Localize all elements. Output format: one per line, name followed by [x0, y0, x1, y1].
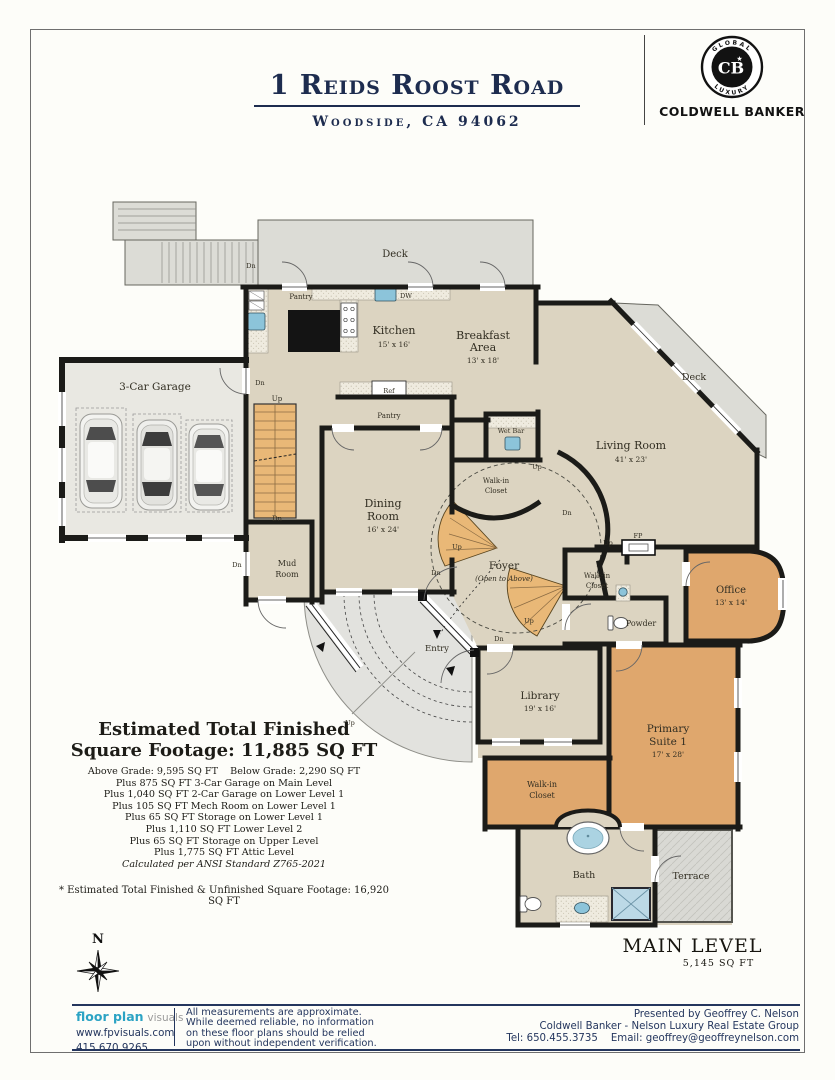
room-dims-breakfast: 13' x 18'	[467, 356, 499, 365]
room-label-wet-bar: Wet Bar	[498, 427, 525, 435]
compass-north-label: N	[70, 932, 126, 947]
dishwasher-icon	[375, 288, 396, 301]
room-office-floor	[686, 551, 784, 641]
car-3	[189, 424, 229, 510]
compass-rose: N	[70, 932, 126, 999]
deck-top	[113, 202, 533, 285]
range-icon	[341, 303, 357, 337]
estimate-line: Plus 105 SQ FT Mech Room on Lower Level …	[56, 801, 392, 813]
room-label-walkin-mid: Walk-in	[584, 572, 611, 580]
room-label-foyer: Foyer	[489, 560, 520, 572]
footer-vendor: floor plan visuals www.fpvisuals.com 415…	[76, 1009, 172, 1054]
estimate-footnote: * Estimated Total Finished & Unfinished …	[56, 885, 392, 907]
room-note-foyer: (Open to Above)	[475, 575, 533, 583]
svg-text:Dn: Dn	[562, 509, 571, 517]
footer-divider	[174, 1008, 175, 1046]
square-footage-summary: Estimated Total Finished Square Footage:…	[56, 719, 392, 907]
car-1	[80, 414, 122, 508]
agent-contact: Tel: 650.455.3735 Email: geoffrey@geoffr…	[399, 1033, 799, 1045]
wet-bar-sink-icon	[505, 437, 520, 450]
vendor-website: www.fpvisuals.com	[76, 1027, 172, 1039]
room-label-walkin-upper: Walk-in	[483, 477, 510, 485]
room-dims-kitchen: 15' x 16'	[378, 340, 410, 349]
room-label-library: Library	[520, 690, 559, 702]
fixture-label-ref: Ref	[383, 387, 395, 395]
floor-plan: Deck Dn Pantry DW Kitchen 15' x 16' Brea…	[0, 0, 835, 1080]
room-label-pantry-2: Pantry	[377, 412, 400, 420]
room-dims-dining: 16' x 24'	[367, 525, 399, 534]
estimate-heading-1: Estimated Total Finished	[56, 719, 392, 740]
footer-agent-info: Presented by Geoffrey C. Nelson Coldwell…	[399, 1009, 799, 1045]
level-name: MAIN LEVEL	[590, 935, 795, 957]
svg-text:Dn: Dn	[232, 561, 241, 569]
room-label-garage: 3-Car Garage	[119, 381, 191, 393]
powder-sink-icon	[619, 588, 627, 596]
footer-rule-top	[72, 1004, 800, 1006]
stair-main	[254, 404, 296, 518]
estimate-line: Plus 1,775 SQ FT Attic Level	[56, 847, 392, 859]
svg-text:Dn: Dn	[494, 635, 503, 643]
estimate-line: Above Grade: 9,595 SQ FT Below Grade: 2,…	[56, 766, 392, 778]
svg-text:Room: Room	[367, 510, 400, 523]
svg-text:Closet: Closet	[485, 487, 508, 495]
room-dims-office: 13' x 14'	[715, 598, 747, 607]
svg-text:Suite 1: Suite 1	[649, 736, 687, 748]
estimate-line: Plus 1,110 SQ FT Lower Level 2	[56, 824, 392, 836]
svg-text:Area: Area	[469, 341, 497, 354]
estimate-line: Plus 65 SQ FT Storage on Lower Level 1	[56, 812, 392, 824]
room-label-office: Office	[716, 585, 746, 596]
brokerage: Coldwell Banker - Nelson Luxury Real Est…	[399, 1021, 799, 1033]
svg-text:Closet: Closet	[529, 791, 555, 800]
room-dims-library: 19' x 16'	[524, 704, 556, 713]
fixture-label-dw: DW	[400, 292, 412, 300]
svg-text:Up: Up	[452, 543, 462, 551]
estimate-line: Plus 875 SQ FT 3-Car Garage on Main Leve…	[56, 778, 392, 790]
level-title: MAIN LEVEL 5,145 SQ FT	[590, 935, 795, 969]
ansi-note: Calculated per ANSI Standard Z765-2021	[56, 859, 392, 871]
powder-toilet-icon	[608, 616, 613, 630]
room-label-bath: Bath	[573, 870, 596, 881]
room-label-deck-right: Deck	[682, 372, 707, 383]
room-label-dining: Dining	[364, 497, 401, 510]
room-label-primary: Primary	[647, 723, 690, 735]
level-sqft: 5,145 SQ FT	[590, 958, 795, 969]
room-label-entry: Entry	[425, 644, 449, 654]
svg-text:Up: Up	[532, 463, 542, 471]
kitchen-sink-icon	[248, 313, 265, 330]
svg-text:Closet: Closet	[586, 582, 609, 590]
svg-text:Up: Up	[272, 395, 283, 403]
room-label-pantry-1: Pantry	[289, 293, 312, 301]
estimate-heading-2: Square Footage: 11,885 SQ FT	[56, 740, 392, 761]
room-label-terrace: Terrace	[673, 871, 710, 882]
bath-sink-icon	[575, 903, 590, 914]
room-label-deck-top: Deck	[382, 249, 409, 260]
estimate-line: Plus 65 SQ FT Storage on Upper Level	[56, 836, 392, 848]
room-label-powder: Powder	[626, 619, 657, 628]
compass-star-icon	[74, 947, 122, 995]
room-dims-living: 41' x 23'	[615, 455, 647, 464]
room-label-walkin-lower: Walk-in	[527, 780, 557, 789]
presented-by: Presented by Geoffrey C. Nelson	[399, 1009, 799, 1021]
svg-text:Dn: Dn	[255, 379, 264, 387]
fpvisuals-logo: floor plan visuals	[76, 1009, 172, 1024]
svg-text:Room: Room	[275, 570, 299, 579]
car-2	[137, 420, 177, 510]
vendor-phone: 415.670.9265	[76, 1042, 172, 1054]
fireplace-icon	[622, 540, 655, 555]
svg-text:Dn: Dn	[272, 515, 283, 523]
fixture-label-fp: FP	[634, 532, 644, 540]
svg-text:Up: Up	[603, 539, 613, 547]
svg-text:Dn: Dn	[431, 569, 440, 577]
svg-text:Up: Up	[524, 617, 534, 625]
room-dims-prim: 17' x 28'	[652, 750, 684, 759]
estimate-line: Plus 1,040 SQ FT 2-Car Garage on Lower L…	[56, 789, 392, 801]
room-label-kitchen: Kitchen	[373, 324, 416, 337]
room-label-mud: Mud	[278, 559, 296, 568]
stair-label: Dn	[246, 262, 255, 270]
room-label-living: Living Room	[596, 439, 667, 452]
